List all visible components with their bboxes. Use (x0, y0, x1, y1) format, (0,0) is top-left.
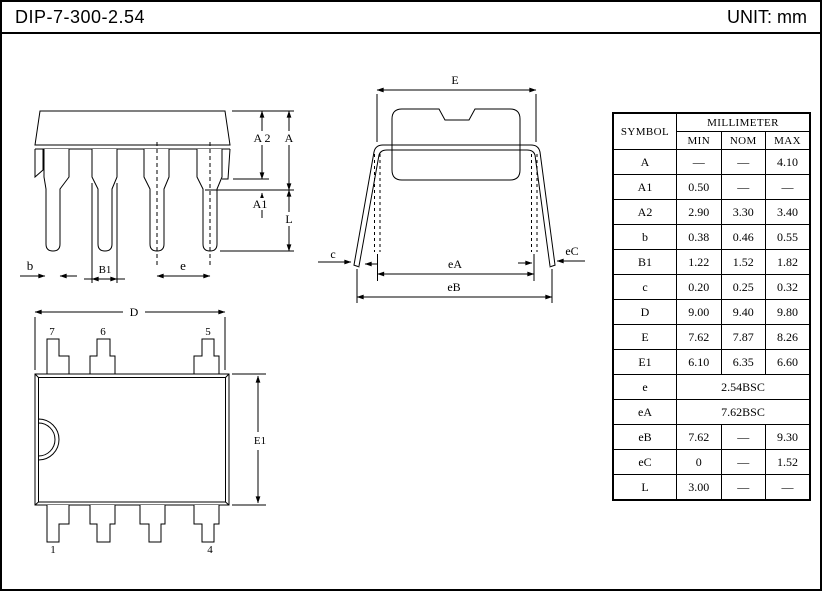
dim-label-e: e (180, 258, 186, 273)
table-row: A22.903.303.40 (613, 200, 810, 225)
symbol-cell: E (613, 325, 677, 350)
dim-label-eC: eC (565, 244, 578, 258)
value-cell-nom: — (721, 150, 766, 175)
package-body-top (35, 374, 229, 505)
dim-label-A2: A 2 (253, 131, 270, 145)
dim-label-eB: eB (447, 280, 460, 294)
value-cell-min: 0.20 (677, 275, 722, 300)
value-cell-span: 7.62BSC (677, 400, 811, 425)
side-view: E c eC eA (318, 73, 585, 303)
pin-number-1: 1 (50, 544, 56, 556)
table-row: b0.380.460.55 (613, 225, 810, 250)
value-cell-max: — (766, 475, 811, 501)
value-cell-nom: — (721, 425, 766, 450)
value-cell-max: 9.80 (766, 300, 811, 325)
value-cell-min: 0.38 (677, 225, 722, 250)
table-row: eB7.62—9.30 (613, 425, 810, 450)
value-cell-nom: 6.35 (721, 350, 766, 375)
value-cell-max: — (766, 175, 811, 200)
symbol-cell: L (613, 475, 677, 501)
value-cell-nom: 7.87 (721, 325, 766, 350)
pin (194, 339, 219, 374)
table-row: E16.106.356.60 (613, 350, 810, 375)
value-cell-max: 9.30 (766, 425, 811, 450)
table-row: eC0—1.52 (613, 450, 810, 475)
front-view-pins (44, 142, 222, 268)
pin-number-7: 7 (49, 326, 55, 338)
value-cell-max: 0.55 (766, 225, 811, 250)
value-cell-min: 0.50 (677, 175, 722, 200)
value-cell-min: 3.00 (677, 475, 722, 501)
front-view: A 2 A A1 L b B1 e (20, 111, 296, 283)
drawing-sheet: DIP-7-300-2.54 UNIT: mm (0, 0, 822, 591)
value-cell-min: 2.90 (677, 200, 722, 225)
value-cell-max: 0.32 (766, 275, 811, 300)
value-cell-min: 7.62 (677, 325, 722, 350)
pin (140, 505, 165, 542)
millimeter-header: MILLIMETER (677, 113, 811, 132)
symbol-cell: c (613, 275, 677, 300)
value-cell-nom: 0.46 (721, 225, 766, 250)
pin (194, 505, 219, 542)
pin (92, 149, 117, 251)
dim-label-A: A (285, 131, 294, 145)
dim-label-B1: B1 (99, 264, 112, 276)
dimension-table: SYMBOL MILLIMETER MIN NOM MAX A——4.10A10… (612, 112, 811, 501)
top-view: D 7 6 5 E1 (35, 305, 266, 556)
table-row: A10.50—— (613, 175, 810, 200)
dim-label-L: L (285, 212, 292, 226)
pin (47, 505, 69, 542)
symbol-cell: eA (613, 400, 677, 425)
value-cell-max: 4.10 (766, 150, 811, 175)
value-cell-nom: 3.30 (721, 200, 766, 225)
value-cell-max: 1.52 (766, 450, 811, 475)
value-cell-max: 1.82 (766, 250, 811, 275)
value-cell-nom: 1.52 (721, 250, 766, 275)
symbol-cell: e (613, 375, 677, 400)
dim-label-eA: eA (448, 257, 462, 271)
pin (47, 339, 69, 374)
value-cell-nom: — (721, 475, 766, 501)
dim-label-A1: A1 (253, 197, 268, 211)
symbol-cell: A2 (613, 200, 677, 225)
pin-number-6: 6 (100, 326, 106, 338)
pin-number-5: 5 (205, 326, 211, 338)
table-row: D9.009.409.80 (613, 300, 810, 325)
value-cell-min: 6.10 (677, 350, 722, 375)
value-cell-max: 6.60 (766, 350, 811, 375)
pin-number-4: 4 (207, 544, 213, 556)
table-row: L3.00—— (613, 475, 810, 501)
symbol-cell: b (613, 225, 677, 250)
symbol-cell: A1 (613, 175, 677, 200)
symbol-header: SYMBOL (613, 113, 677, 150)
dim-label-D: D (130, 305, 139, 319)
value-cell-nom: — (721, 450, 766, 475)
symbol-cell: E1 (613, 350, 677, 375)
symbol-cell: B1 (613, 250, 677, 275)
value-cell-min: 7.62 (677, 425, 722, 450)
package-body-front (35, 111, 230, 145)
value-cell-max: 3.40 (766, 200, 811, 225)
value-cell-min: 1.22 (677, 250, 722, 275)
table-row: eA7.62BSC (613, 400, 810, 425)
value-cell-min: 9.00 (677, 300, 722, 325)
symbol-cell: eB (613, 425, 677, 450)
table-row: e2.54BSC (613, 375, 810, 400)
table-row: c0.200.250.32 (613, 275, 810, 300)
value-cell-max: 8.26 (766, 325, 811, 350)
table-row: A——4.10 (613, 150, 810, 175)
symbol-cell: A (613, 150, 677, 175)
dim-label-c: c (330, 247, 335, 261)
pin (44, 149, 69, 251)
value-cell-nom: 0.25 (721, 275, 766, 300)
pin (90, 339, 115, 374)
max-header: MAX (766, 132, 811, 150)
value-cell-min: — (677, 150, 722, 175)
table-row: E7.627.878.26 (613, 325, 810, 350)
value-cell-nom: — (721, 175, 766, 200)
value-cell-min: 0 (677, 450, 722, 475)
dimension-table-body: A——4.10A10.50——A22.903.303.40b0.380.460.… (613, 150, 810, 501)
value-cell-span: 2.54BSC (677, 375, 811, 400)
dim-label-b: b (27, 258, 34, 273)
table-row: B11.221.521.82 (613, 250, 810, 275)
dim-label-E1: E1 (254, 435, 266, 447)
symbol-cell: D (613, 300, 677, 325)
value-cell-nom: 9.40 (721, 300, 766, 325)
pin (90, 505, 115, 542)
dim-label-E: E (451, 73, 458, 87)
min-header: MIN (677, 132, 722, 150)
symbol-cell: eC (613, 450, 677, 475)
nom-header: NOM (721, 132, 766, 150)
